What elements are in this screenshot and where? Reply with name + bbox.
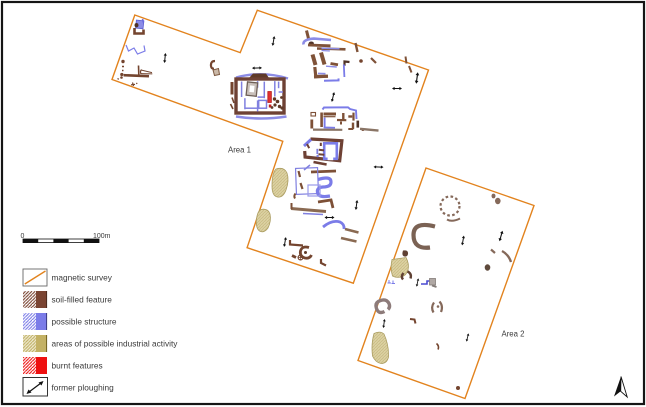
svg-text:Area 1: Area 1 — [228, 146, 251, 155]
svg-text:soil-filled feature: soil-filled feature — [52, 294, 113, 304]
svg-text:areas of possible industrial a: areas of possible industrial activity — [52, 338, 179, 348]
svg-text:possible structure: possible structure — [52, 316, 117, 326]
svg-text:magnetic survey: magnetic survey — [52, 272, 113, 282]
svg-text:burnt features: burnt features — [52, 360, 103, 370]
svg-text:former ploughing: former ploughing — [52, 382, 115, 392]
svg-text:Area 2: Area 2 — [502, 329, 525, 338]
